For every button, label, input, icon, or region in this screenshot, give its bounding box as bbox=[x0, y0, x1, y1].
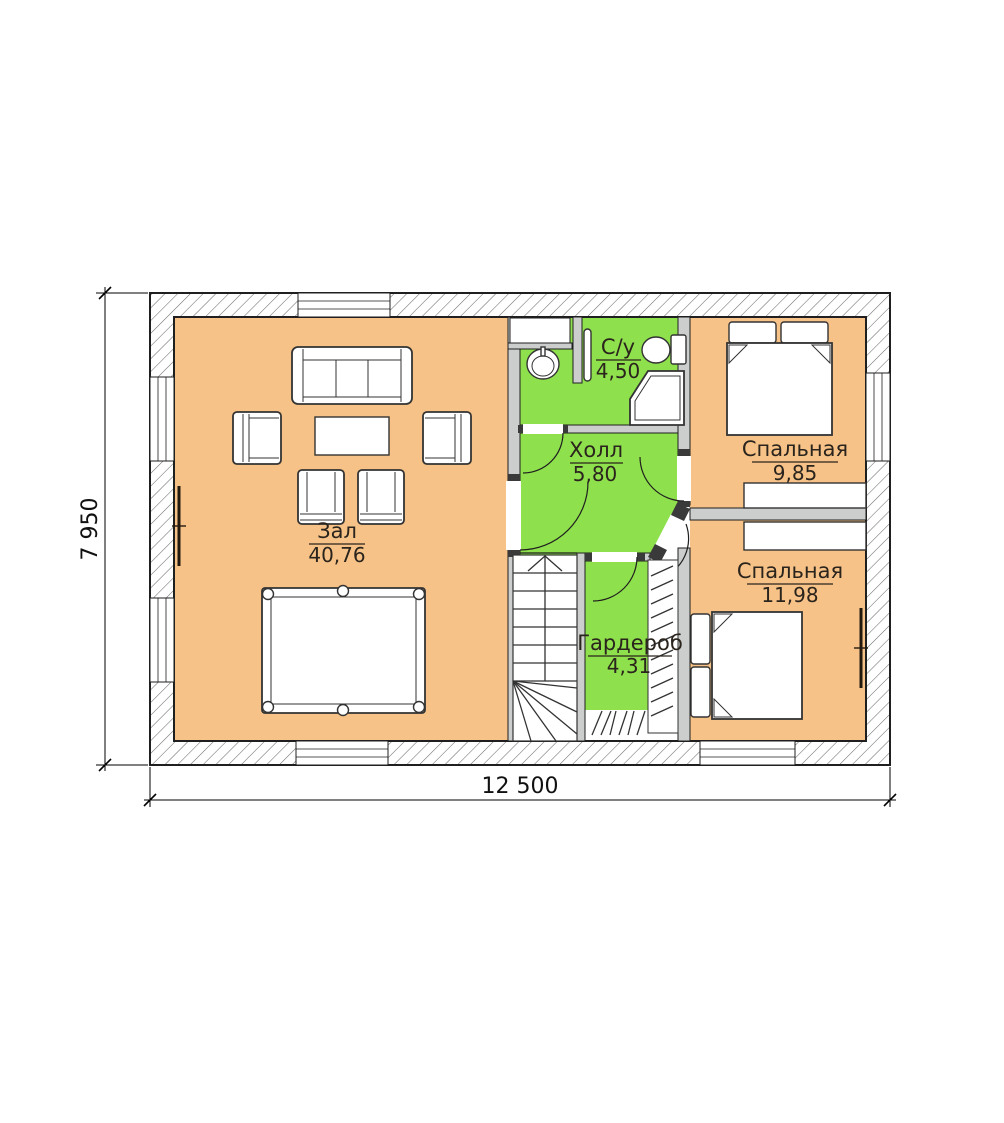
wall-su-inner bbox=[573, 317, 582, 383]
dimension-left: 7 950 bbox=[78, 287, 148, 771]
room-name: С/у bbox=[601, 335, 635, 359]
room-name: Спальная bbox=[737, 559, 843, 583]
wall-cap bbox=[563, 425, 568, 433]
room-name: Зал bbox=[317, 519, 357, 543]
billiard-table bbox=[262, 586, 425, 716]
cabinet-bedroom-bottom bbox=[744, 522, 866, 550]
room-name: Гардероб bbox=[577, 631, 683, 655]
room-name: Спальная bbox=[742, 437, 848, 461]
wall-cap bbox=[637, 553, 645, 561]
wall-cap bbox=[678, 449, 690, 456]
opening-zal-hall bbox=[506, 481, 521, 550]
chair-bottom-right bbox=[358, 470, 404, 524]
label-holl: Холл 5,80 bbox=[569, 438, 623, 486]
window-left-upper bbox=[150, 377, 174, 461]
room-area: 5,80 bbox=[573, 462, 618, 486]
opening-garderob bbox=[592, 552, 637, 562]
floor-plan-drawing: Зал 40,76 Холл 5,80 С/у 4,50 Спальная 9,… bbox=[0, 0, 1004, 1123]
duct-niche bbox=[510, 318, 570, 343]
opening-su bbox=[523, 424, 563, 434]
floor-plan-page: Зал 40,76 Холл 5,80 С/у 4,50 Спальная 9,… bbox=[0, 0, 1004, 1123]
window-bottom-left bbox=[296, 741, 388, 765]
window-right bbox=[866, 373, 890, 461]
window-top bbox=[298, 293, 390, 317]
room-area: 4,50 bbox=[596, 359, 641, 383]
dimension-height-label: 7 950 bbox=[78, 498, 103, 561]
chair-bottom-left bbox=[298, 470, 344, 524]
towel-rail bbox=[584, 329, 591, 381]
toilet bbox=[642, 335, 686, 364]
cabinet-bedroom-top bbox=[744, 483, 866, 508]
wall-cap bbox=[585, 553, 592, 561]
wall-bedrooms-divider bbox=[690, 508, 866, 520]
dimension-width-label: 12 500 bbox=[482, 774, 559, 799]
armchair-left bbox=[233, 412, 281, 464]
room-name: Холл bbox=[569, 438, 623, 462]
window-left-lower bbox=[150, 598, 174, 682]
room-area: 11,98 bbox=[761, 583, 818, 607]
wall-cap bbox=[678, 501, 690, 507]
label-su: С/у 4,50 bbox=[596, 335, 641, 383]
niche-wall bbox=[508, 343, 572, 349]
opening-bedroom-top bbox=[677, 456, 691, 501]
sofa bbox=[292, 347, 412, 404]
room-area: 40,76 bbox=[308, 543, 365, 567]
room-area: 9,85 bbox=[773, 461, 818, 485]
dimension-bottom: 12 500 bbox=[144, 767, 896, 807]
coffee-table bbox=[315, 417, 389, 455]
window-bottom-right bbox=[700, 741, 795, 765]
wall-cap bbox=[508, 474, 520, 481]
wardrobe-rail-bottom bbox=[592, 711, 645, 735]
armchair-right bbox=[423, 412, 471, 464]
stairs bbox=[513, 555, 577, 741]
wall-cap bbox=[518, 425, 523, 433]
room-area: 4,31 bbox=[607, 654, 652, 678]
